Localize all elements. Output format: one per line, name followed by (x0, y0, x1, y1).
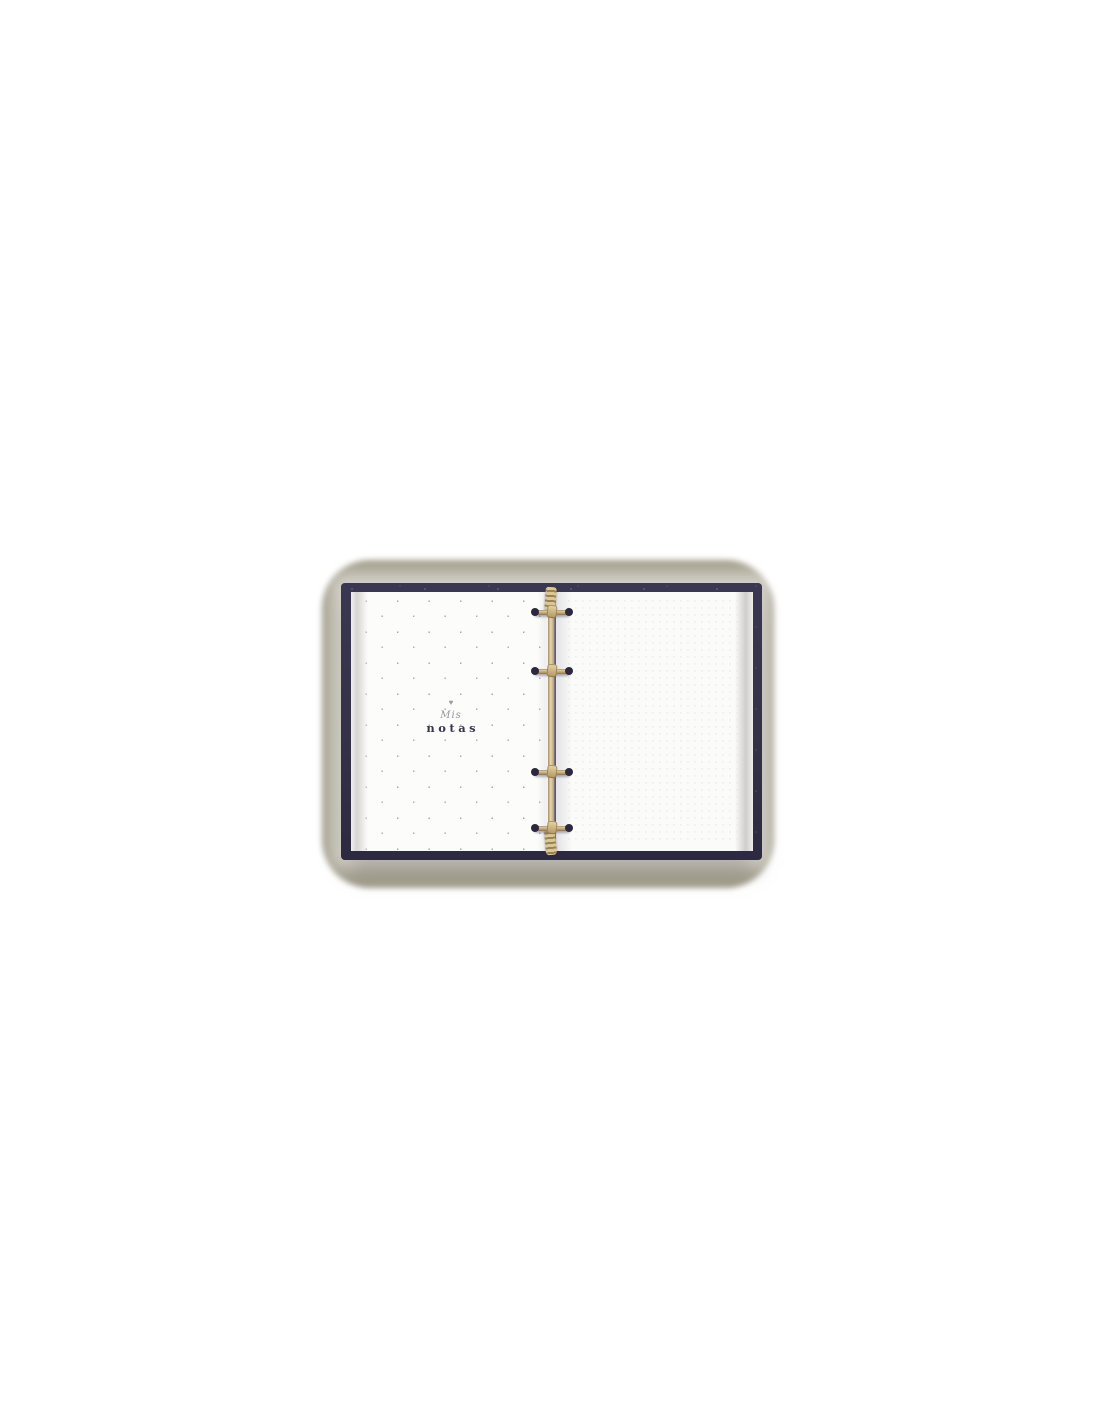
binder-ring (531, 666, 573, 676)
ring-knot (546, 765, 557, 779)
product-stage: ♥ Mis notas (0, 0, 1100, 1422)
left-page-title-block: ♥ Mis notas (351, 698, 551, 735)
notebook-cover: ♥ Mis notas (341, 583, 762, 860)
ring-tip-right (565, 768, 573, 776)
left-page-subtitle: Mis (351, 711, 551, 721)
left-page-title: notas (351, 723, 551, 735)
binder-ring (531, 767, 573, 777)
ring-tip-right (565, 608, 573, 616)
ring-knot (546, 821, 557, 835)
binder-ring (531, 823, 573, 833)
dot-pattern-dense (568, 600, 739, 845)
binder-ring (531, 607, 573, 617)
left-page: ♥ Mis notas (351, 592, 551, 851)
ring-tip-left (531, 768, 539, 776)
ring-tip-left (531, 824, 539, 832)
binder-spine (548, 592, 554, 851)
heart-icon: ♥ (351, 698, 551, 707)
right-page (556, 592, 753, 851)
spine-shadow-right (556, 592, 572, 851)
ring-tip-right (565, 667, 573, 675)
ring-tip-right (565, 824, 573, 832)
ring-tip-left (531, 667, 539, 675)
ring-knot (546, 664, 557, 678)
ring-tip-left (531, 608, 539, 616)
ring-knot (546, 605, 557, 619)
